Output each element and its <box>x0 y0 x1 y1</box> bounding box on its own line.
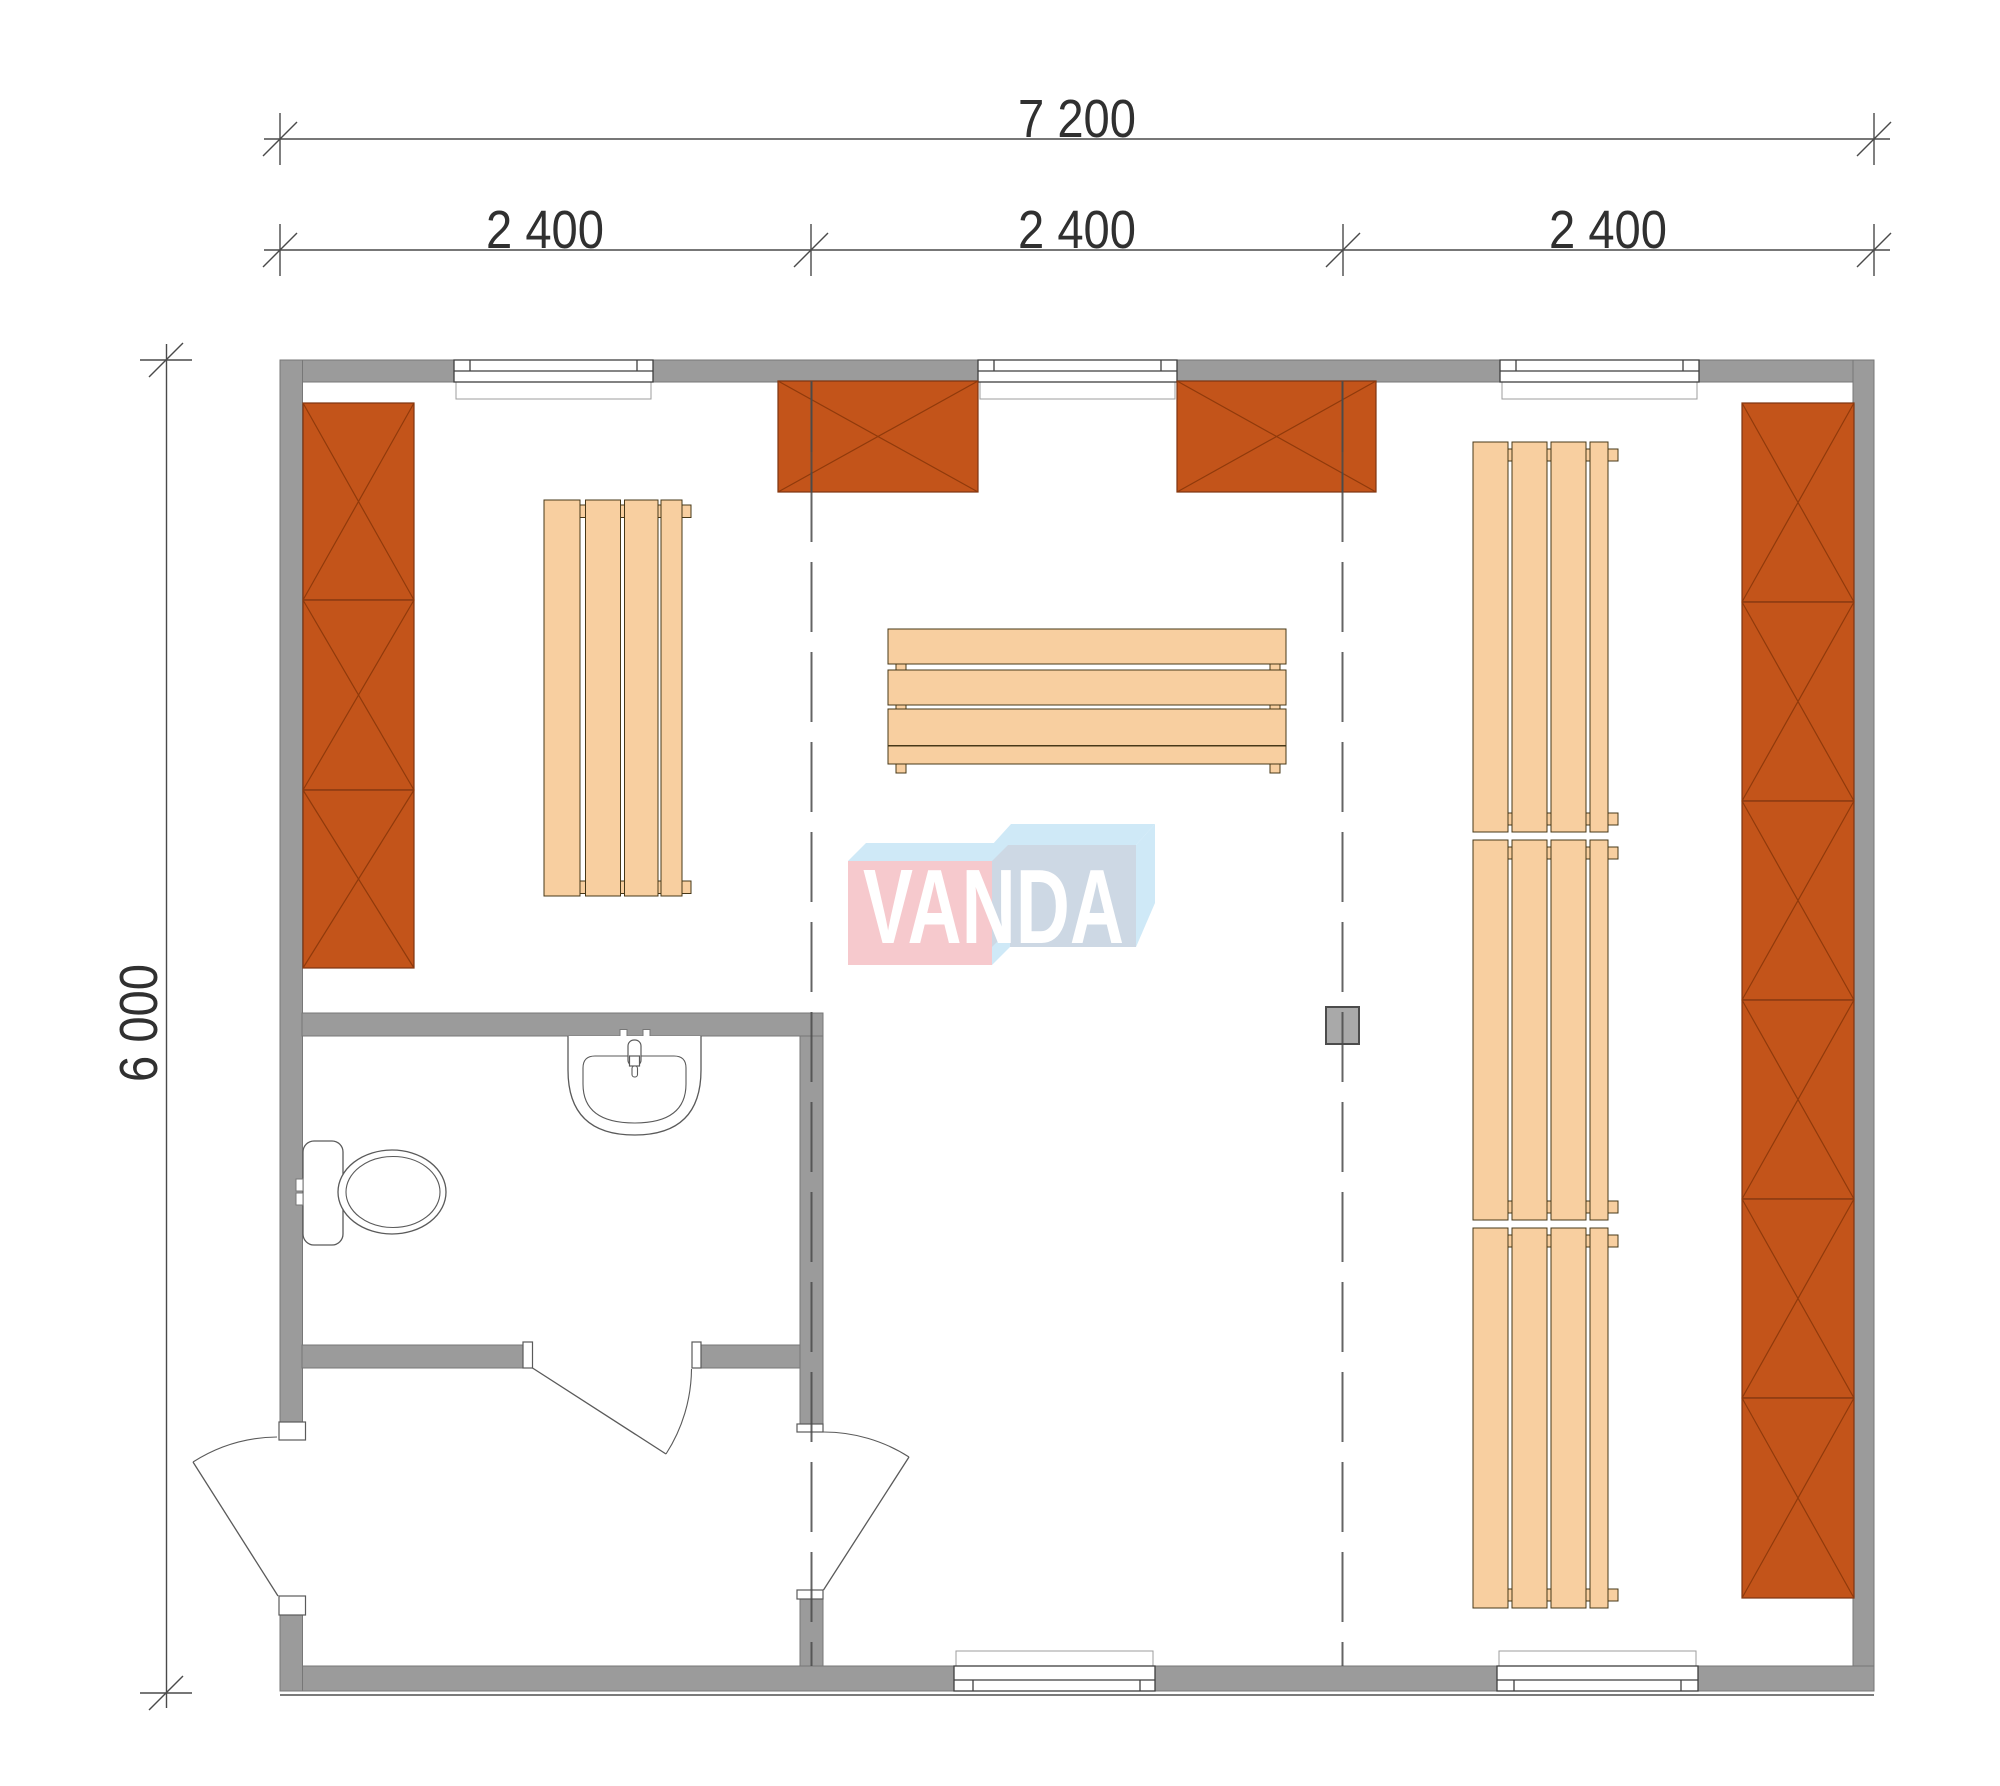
svg-text:2 400: 2 400 <box>1018 200 1136 260</box>
svg-text:VANDA: VANDA <box>863 848 1124 966</box>
svg-text:2 400: 2 400 <box>1549 200 1667 260</box>
svg-text:6 000: 6 000 <box>109 964 169 1082</box>
svg-text:7 200: 7 200 <box>1018 89 1136 149</box>
svg-text:2 400: 2 400 <box>486 200 604 260</box>
